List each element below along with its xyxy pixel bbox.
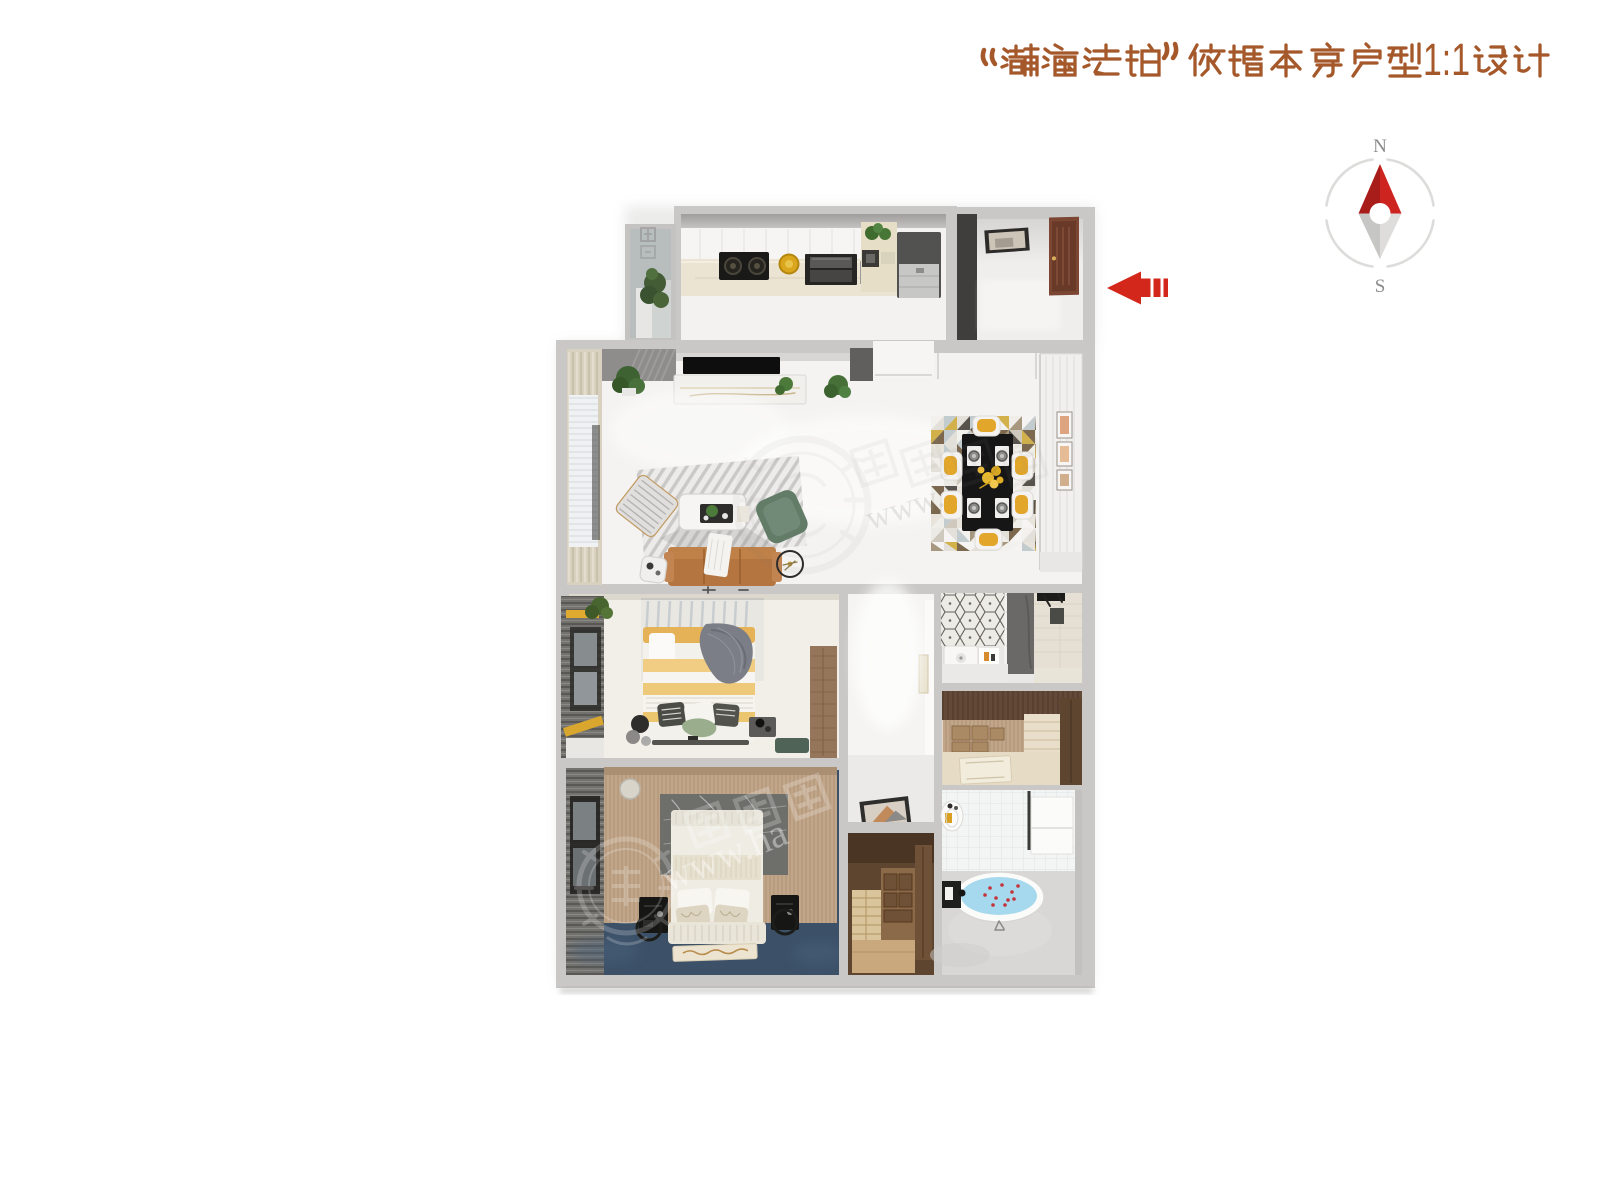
svg-text:S: S — [1375, 276, 1386, 297]
svg-text:1:1: 1:1 — [1423, 34, 1470, 85]
svg-text:N: N — [1373, 136, 1387, 157]
